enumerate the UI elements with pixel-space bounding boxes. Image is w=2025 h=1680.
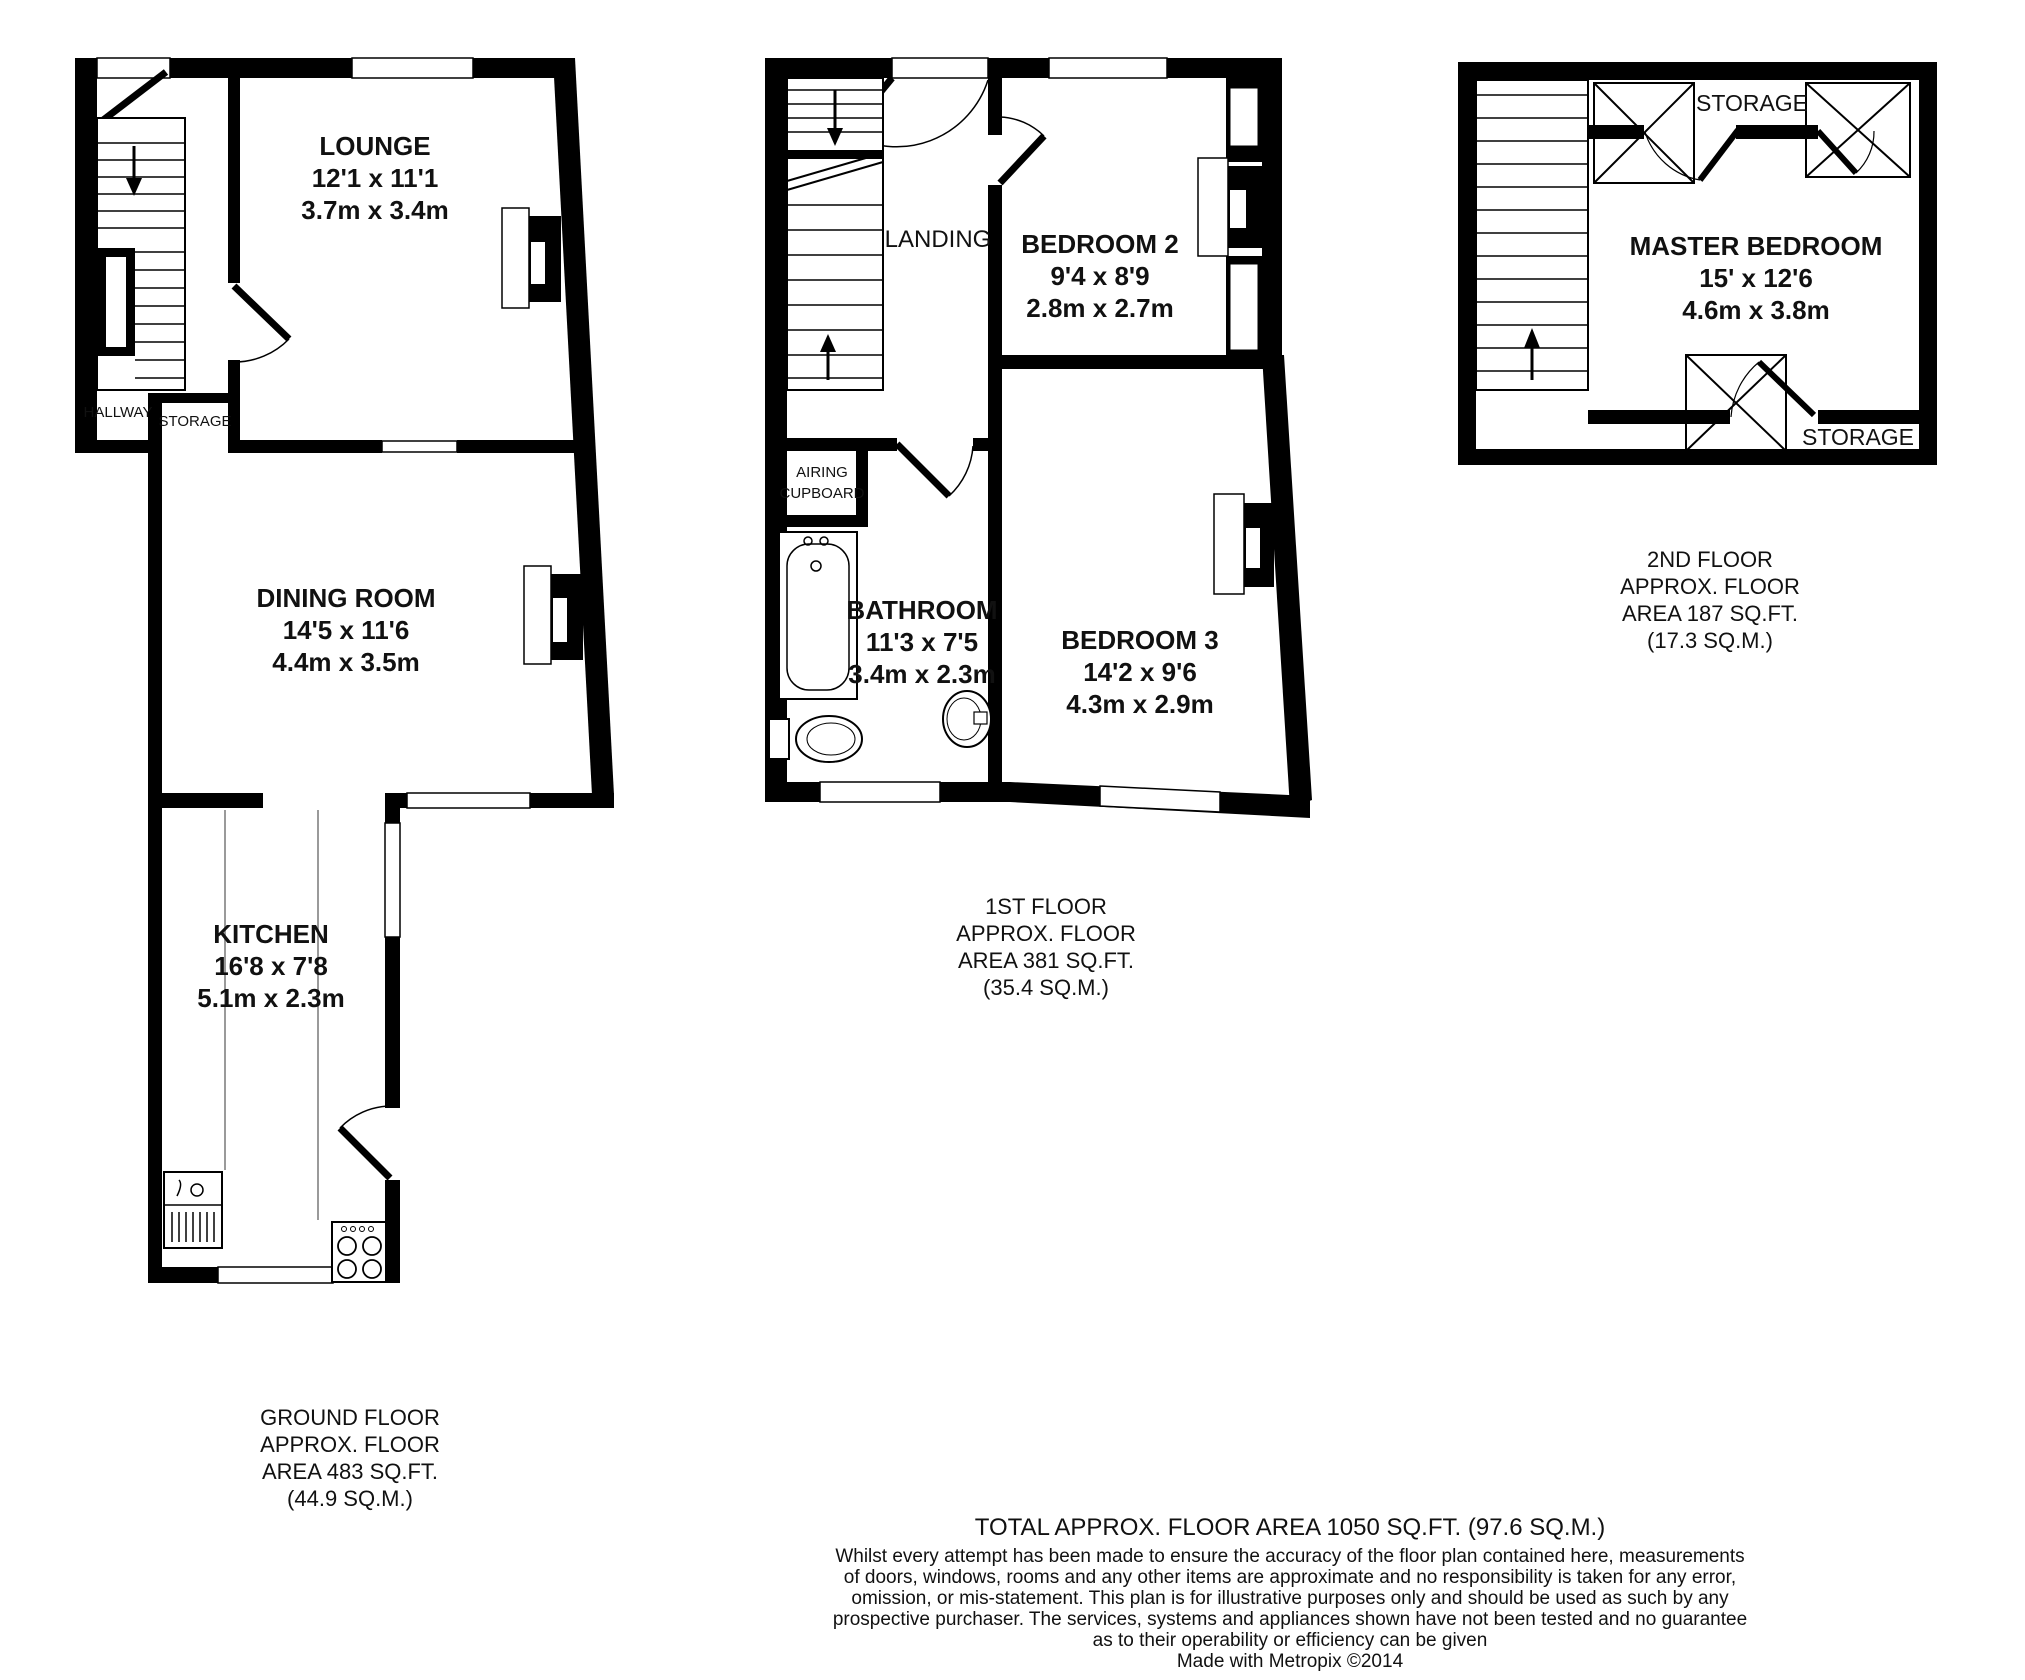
kitchen-door-icon <box>340 1106 390 1178</box>
kitchen-counter-lines <box>225 810 318 1220</box>
floorplan-page: LOUNGE 12'1 x 11'1 3.7m x 3.4m DINING RO… <box>0 0 2025 1680</box>
lounge-door-icon <box>234 286 289 362</box>
lounge-chimney-icon <box>502 208 561 308</box>
lounge-dining-opening <box>382 441 457 452</box>
bathroom-window <box>820 782 940 802</box>
landing-doorway <box>892 58 988 78</box>
bathroom-door-icon <box>897 444 973 496</box>
metropix-credit: Made with Metropix ©2014 <box>833 1651 1747 1672</box>
toilet-icon <box>769 716 862 762</box>
area-label-landing: LANDING <box>885 226 992 254</box>
basin-icon <box>943 691 991 747</box>
bathtub-icon <box>779 532 857 699</box>
area-label-hallway: HALLWAY <box>84 404 153 421</box>
stove-icon <box>332 1222 386 1282</box>
area-label-airing-cupboard: AIRING CUPBOARD <box>779 462 864 504</box>
first-floor-plan <box>765 58 1312 818</box>
caption-ground-floor: GROUND FLOOR APPROX. FLOOR AREA 483 SQ.F… <box>260 1404 440 1512</box>
room-label-dining-room: DINING ROOM 14'5 x 11'6 4.4m x 3.5m <box>256 582 435 678</box>
room-label-bedroom-3: BEDROOM 3 14'2 x 9'6 4.3m x 2.9m <box>1061 624 1218 720</box>
bedroom2-door-icon <box>1000 117 1044 183</box>
disclaimer-line: omission, or mis-statement. This plan is… <box>833 1588 1747 1609</box>
area-label-storage-top: STORAGE <box>1696 90 1808 117</box>
second-stairs <box>1476 80 1588 390</box>
disclaimer-line: as to their operability or efficiency ca… <box>833 1630 1747 1651</box>
bedroom3-chimney-icon <box>1214 494 1274 594</box>
room-label-bathroom: BATHROOM 11'3 x 7'5 3.4m x 2.3m <box>846 594 997 690</box>
bedroom2-window <box>1049 58 1167 78</box>
disclaimer-line: of doors, windows, rooms and any other i… <box>833 1567 1747 1588</box>
first-stairs <box>787 78 883 390</box>
kitchen-sink-icon <box>164 1172 222 1248</box>
lounge-window <box>352 58 473 78</box>
caption-second-floor: 2ND FLOOR APPROX. FLOOR AREA 187 SQ.FT. … <box>1620 546 1800 654</box>
ground-stairs <box>97 118 185 390</box>
footer: TOTAL APPROX. FLOOR AREA 1050 SQ.FT. (97… <box>833 1514 1747 1672</box>
room-label-bedroom-2: BEDROOM 2 9'4 x 8'9 2.8m x 2.7m <box>1021 228 1178 324</box>
disclaimer-line: prospective purchaser. The services, sys… <box>833 1609 1747 1630</box>
room-label-lounge: LOUNGE 12'1 x 11'1 3.7m x 3.4m <box>301 130 448 226</box>
room-label-master-bedroom: MASTER BEDROOM 15' x 12'6 4.6m x 3.8m <box>1630 230 1883 326</box>
total-floor-area: TOTAL APPROX. FLOOR AREA 1050 SQ.FT. (97… <box>833 1514 1747 1541</box>
area-label-storage-ground: STORAGE <box>158 413 231 430</box>
bedroom2-chimney-icon <box>1198 78 1266 358</box>
dining-window <box>407 793 530 808</box>
kitchen-side-window <box>385 823 400 937</box>
room-label-kitchen: KITCHEN 16'8 x 7'8 5.1m x 2.3m <box>197 918 344 1014</box>
caption-first-floor: 1ST FLOOR APPROX. FLOOR AREA 381 SQ.FT. … <box>956 893 1136 1001</box>
bedroom3-window <box>1100 786 1220 812</box>
dining-chimney-icon <box>524 566 583 664</box>
disclaimer-line: Whilst every attempt has been made to en… <box>833 1546 1747 1567</box>
area-label-storage-bottom: STORAGE <box>1802 424 1914 451</box>
kitchen-bottom-window <box>218 1267 333 1283</box>
